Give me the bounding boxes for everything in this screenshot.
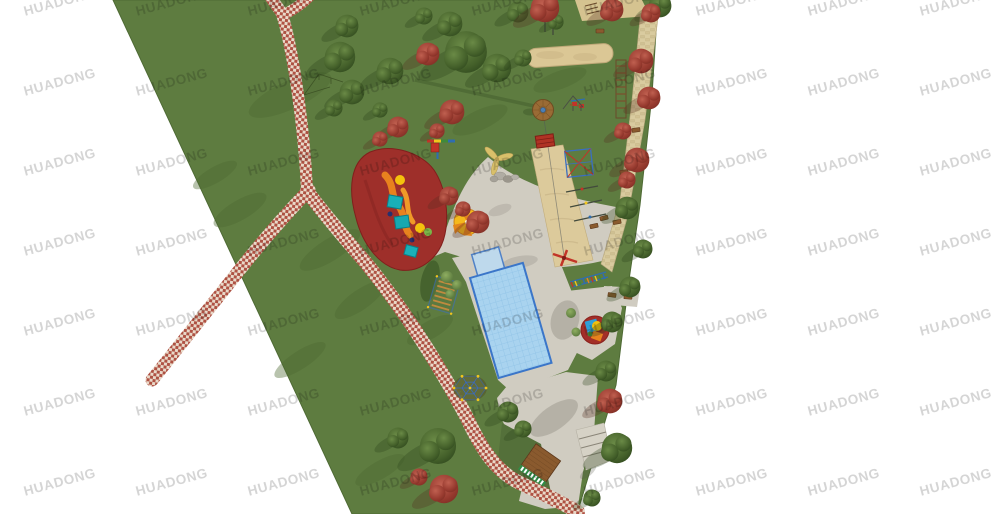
bush: [452, 280, 462, 290]
site-plan-svg: [0, 0, 1000, 514]
bush: [446, 290, 455, 299]
bench: [632, 127, 640, 132]
site-plan-canvas: HUADONGHUADONGHUADONGHUADONGHUADONGHUADO…: [0, 0, 1000, 514]
bench: [596, 29, 604, 33]
play-platform-1: [387, 195, 403, 209]
bush: [441, 271, 453, 283]
bush: [572, 328, 581, 337]
play-platform-2: [394, 215, 410, 229]
bush: [566, 308, 576, 318]
zipline-trolley: [535, 134, 554, 148]
